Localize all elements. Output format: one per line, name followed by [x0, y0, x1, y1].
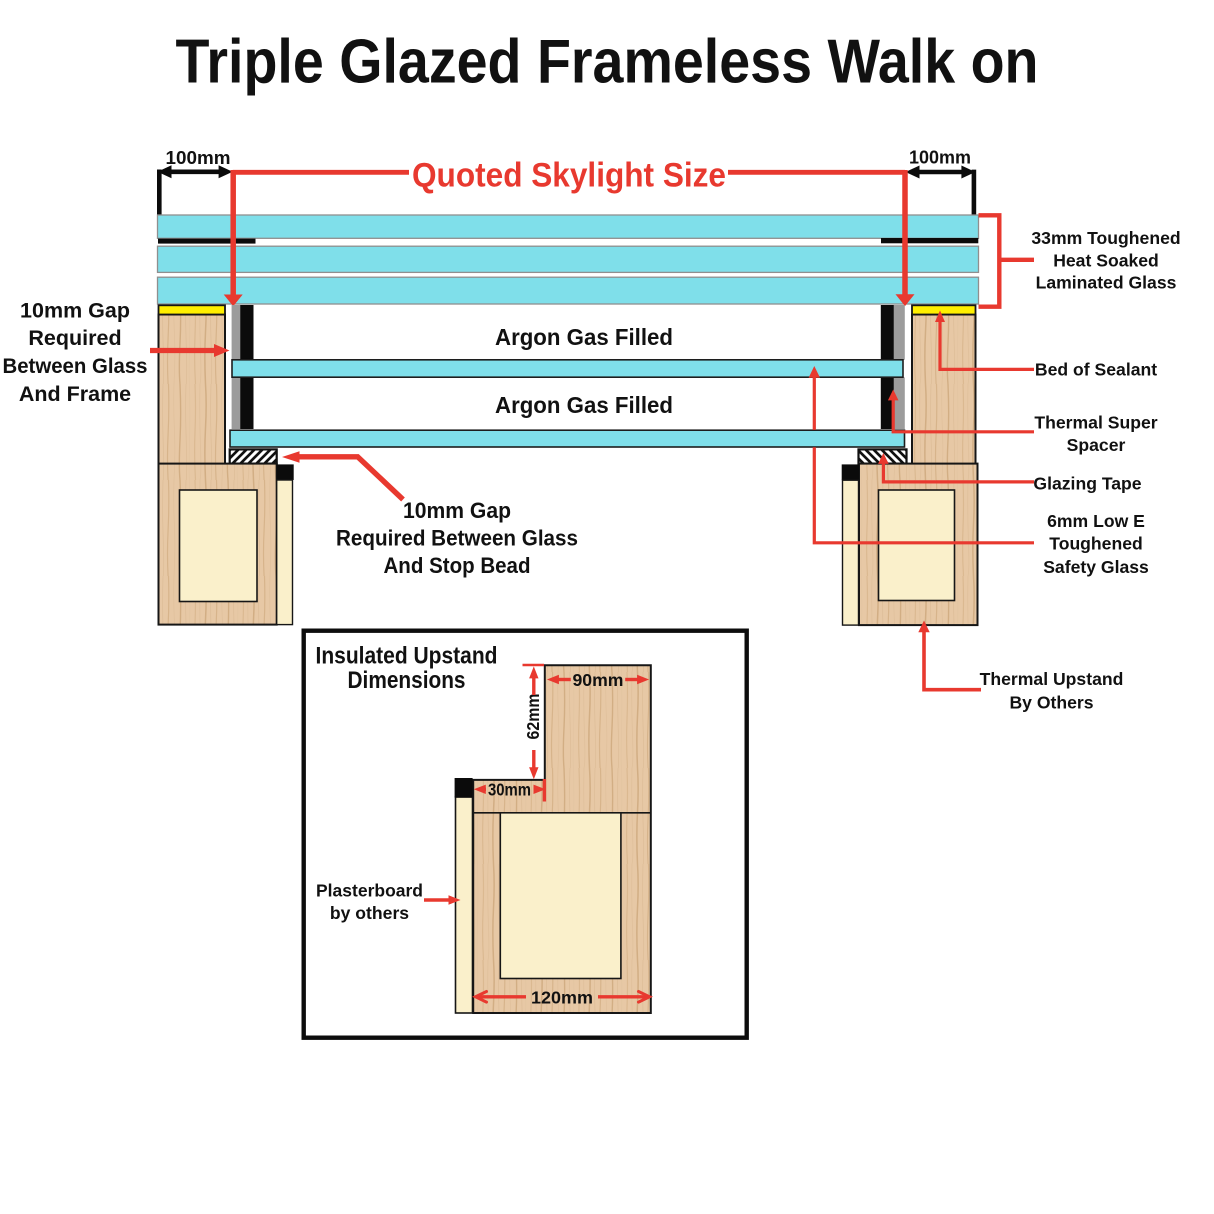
svg-text:6mm Low E: 6mm Low E	[1047, 511, 1145, 531]
svg-text:100mm: 100mm	[909, 147, 971, 168]
svg-text:Bed of Sealant: Bed of Sealant	[1035, 359, 1157, 379]
svg-text:By Others: By Others	[1009, 693, 1093, 713]
svg-text:Thermal Upstand: Thermal Upstand	[980, 669, 1124, 689]
svg-text:Required Between Glass: Required Between Glass	[336, 526, 578, 551]
svg-text:33mm Toughened: 33mm Toughened	[1031, 228, 1180, 248]
svg-text:Argon Gas Filled: Argon Gas Filled	[495, 324, 673, 350]
svg-text:62mm: 62mm	[523, 694, 543, 740]
svg-text:Spacer: Spacer	[1067, 435, 1126, 455]
svg-text:Between Glass: Between Glass	[3, 354, 148, 378]
svg-text:Glazing Tape: Glazing Tape	[1033, 474, 1141, 494]
svg-text:Triple Glazed Frameless Walk o: Triple Glazed Frameless Walk on	[176, 28, 1039, 97]
svg-text:Laminated Glass: Laminated Glass	[1036, 273, 1177, 293]
svg-text:Insulated Upstand: Insulated Upstand	[316, 643, 498, 670]
svg-text:10mm Gap: 10mm Gap	[20, 298, 130, 322]
svg-text:Plasterboard: Plasterboard	[316, 881, 423, 901]
svg-text:90mm: 90mm	[573, 670, 624, 690]
svg-text:Required: Required	[28, 326, 121, 350]
svg-text:Heat Soaked: Heat Soaked	[1053, 250, 1159, 270]
svg-text:by others: by others	[330, 903, 409, 923]
svg-text:Toughened: Toughened	[1049, 534, 1143, 554]
svg-text:Argon Gas Filled: Argon Gas Filled	[495, 392, 673, 418]
svg-text:30mm: 30mm	[488, 780, 531, 800]
svg-text:Quoted Skylight Size: Quoted Skylight Size	[412, 157, 726, 195]
svg-text:100mm: 100mm	[166, 147, 231, 168]
svg-text:10mm Gap: 10mm Gap	[403, 498, 511, 523]
svg-text:120mm: 120mm	[531, 988, 593, 1008]
svg-text:And Stop Bead: And Stop Bead	[384, 553, 531, 578]
svg-text:Thermal Super: Thermal Super	[1034, 413, 1157, 433]
svg-text:Dimensions: Dimensions	[348, 667, 466, 694]
svg-text:Safety Glass: Safety Glass	[1043, 557, 1149, 577]
svg-text:And Frame: And Frame	[19, 382, 131, 406]
